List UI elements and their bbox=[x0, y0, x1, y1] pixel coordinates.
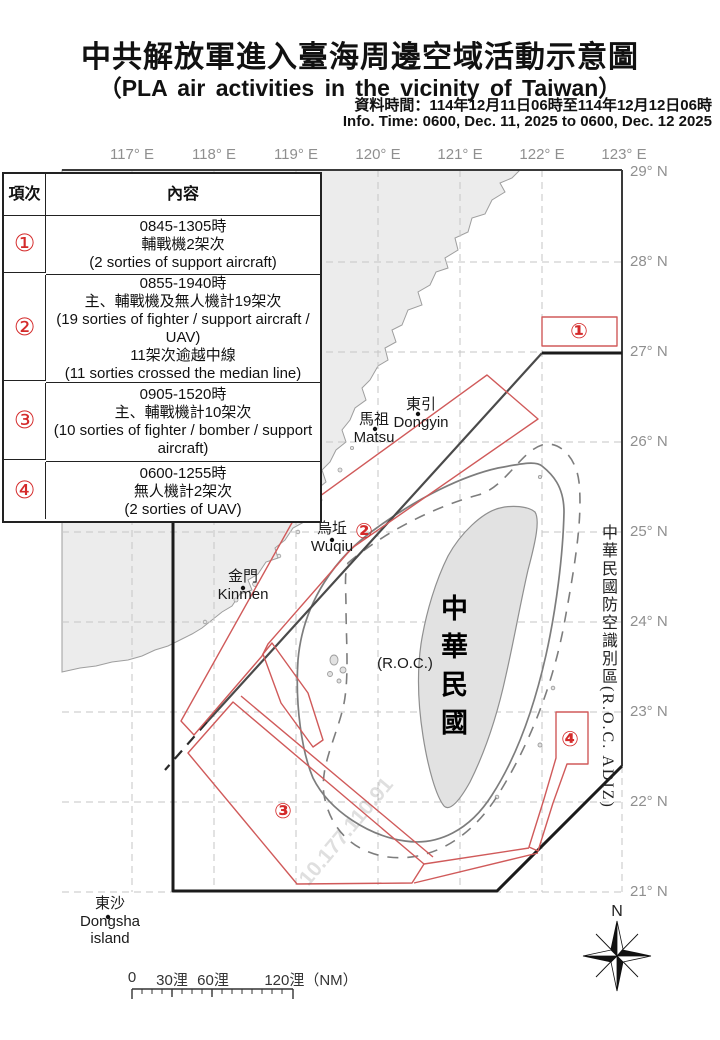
region-4-marker: ④ bbox=[561, 727, 579, 752]
roc-paren-label: (R.O.C.) bbox=[377, 655, 433, 672]
scale-label-60: 60浬 bbox=[197, 969, 229, 990]
region-1-marker: ① bbox=[570, 319, 588, 344]
lon-label: 120° E bbox=[355, 146, 400, 163]
lat-label: 25° N bbox=[630, 523, 668, 540]
lon-label: 121° E bbox=[437, 146, 482, 163]
table-row-content: 0905-1520時 主、輔戰機計10架次 (10 sorties of fig… bbox=[46, 383, 320, 462]
table-row-content: 0855-1940時 主、輔戰機及無人機計19架次 (19 sorties of… bbox=[46, 275, 320, 383]
place-label-kinmen: 金門 Kinmen bbox=[218, 569, 269, 603]
activity-table: 項次 內容 ① 0845-1305時 輔戰機2架次 (2 sorties of … bbox=[2, 172, 322, 523]
lon-label: 117° E bbox=[110, 146, 154, 163]
table-row-content: 0600-1255時 無人機計2架次 (2 sorties of UAV) bbox=[46, 462, 320, 521]
lat-label: 29° N bbox=[630, 163, 668, 180]
lat-label: 22° N bbox=[630, 793, 668, 810]
region-2-marker: ② bbox=[355, 519, 373, 544]
table-row-content: 0845-1305時 輔戰機2架次 (2 sorties of support … bbox=[46, 216, 320, 275]
pla-activity-map-page: 中共解放軍進入臺海周邊空域活動示意圖 （PLA air activities i… bbox=[0, 0, 720, 1040]
scale-bar bbox=[132, 989, 293, 999]
taiwan-label-vertical: 中華民國 bbox=[433, 594, 472, 746]
scale-label-30: 30浬 bbox=[156, 969, 188, 990]
lat-label: 28° N bbox=[630, 253, 668, 270]
compass-rose-icon bbox=[583, 921, 651, 991]
data-time-en: Info. Time: 0600, Dec. 11, 2025 to 0600,… bbox=[343, 113, 712, 130]
place-label-dongsha: 東沙 Dongsha island bbox=[80, 896, 140, 947]
lon-label: 122° E bbox=[519, 146, 564, 163]
lon-label: 119° E bbox=[274, 146, 318, 163]
lat-label: 21° N bbox=[630, 883, 668, 900]
place-label-dongyin: 東引 Dongyin bbox=[393, 397, 448, 431]
adiz-label-vertical: 中華民國防空識別區(R.O.C. ADIZ) bbox=[595, 524, 619, 809]
region-3-marker: ③ bbox=[274, 799, 292, 824]
table-row-number: ② bbox=[4, 275, 46, 381]
data-time-zh: 資料時間：114年12月11日06時至114年12月12日06時 bbox=[354, 94, 712, 115]
compass-north-label: N bbox=[611, 903, 623, 921]
lat-label: 23° N bbox=[630, 703, 668, 720]
lat-label: 26° N bbox=[630, 433, 668, 450]
lat-label: 24° N bbox=[630, 613, 668, 630]
lon-label: 118° E bbox=[192, 146, 236, 163]
table-header-content: 內容 bbox=[46, 174, 320, 216]
table-row-number: ① bbox=[4, 216, 46, 273]
table-row-number: ④ bbox=[4, 462, 46, 519]
lat-label: 27° N bbox=[630, 343, 668, 360]
place-label-wuqiu: 烏坵 Wuqiu bbox=[311, 521, 353, 555]
table-header-item: 項次 bbox=[4, 174, 46, 216]
region-2-spur-outline bbox=[263, 643, 323, 747]
table-row-number: ③ bbox=[4, 383, 46, 460]
place-label-matsu: 馬祖 Matsu bbox=[354, 412, 395, 446]
lon-label: 123° E bbox=[601, 146, 646, 163]
median-line-dashed-extension bbox=[165, 722, 207, 770]
scale-label-120: 120浬（NM） bbox=[264, 969, 357, 990]
scale-label-0: 0 bbox=[128, 969, 136, 986]
